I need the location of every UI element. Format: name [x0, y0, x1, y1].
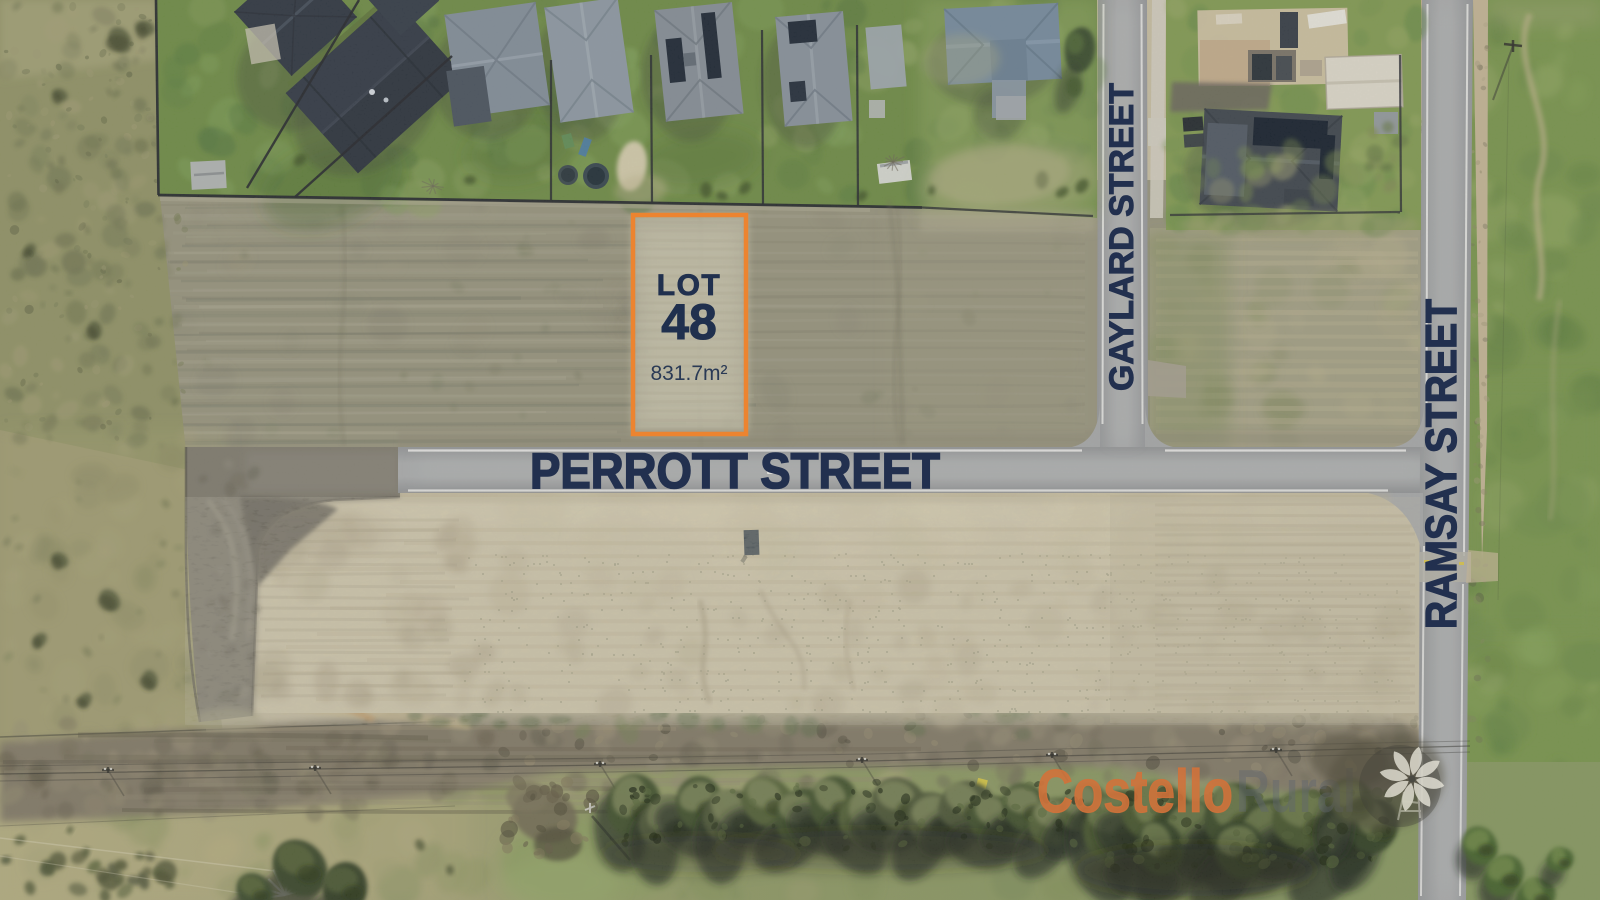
svg-text:RAMSAY STREET: RAMSAY STREET: [1417, 299, 1466, 629]
svg-text:48: 48: [661, 294, 717, 350]
svg-text:PERROTT STREET: PERROTT STREET: [530, 443, 940, 499]
svg-text:GAYLARD STREET: GAYLARD STREET: [1103, 83, 1141, 391]
svg-text:Costello: Costello: [1037, 758, 1233, 825]
svg-text:831.7m²: 831.7m²: [650, 362, 727, 385]
